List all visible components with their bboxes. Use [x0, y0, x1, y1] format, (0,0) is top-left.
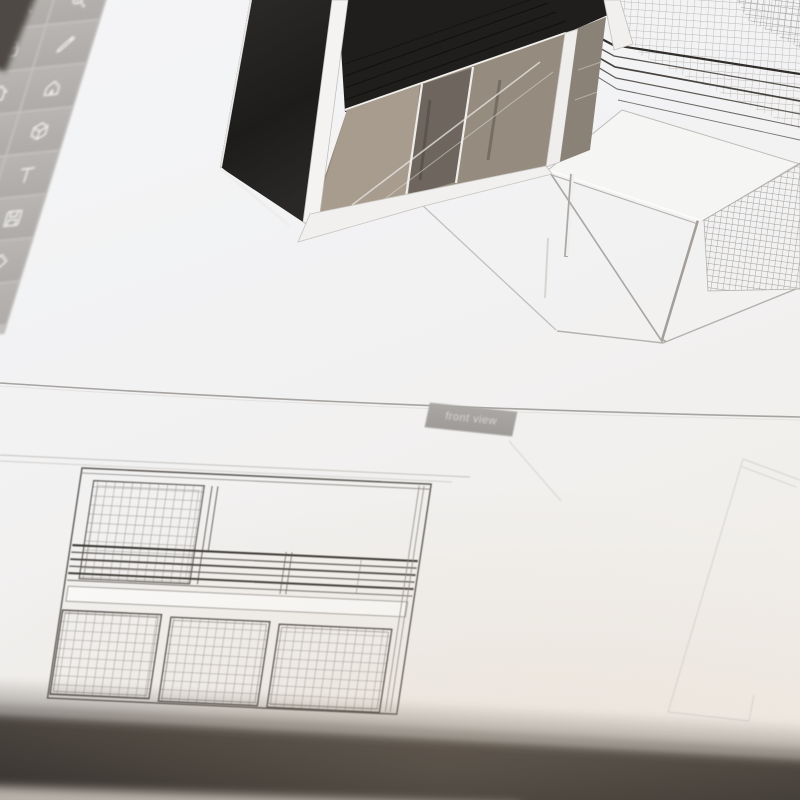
wrench-icon	[0, 293, 1, 318]
zoom-in-icon	[65, 0, 94, 13]
sheet-top-line	[0, 455, 470, 477]
cube-icon	[25, 119, 54, 144]
cad-canvas	[0, 0, 800, 800]
elevation-viewport[interactable]	[0, 441, 800, 721]
viewport-divider	[0, 383, 800, 420]
partial-elevation-drawing	[509, 441, 800, 721]
photographed-cad-screen: front view	[0, 0, 800, 800]
diamond-icon	[0, 250, 14, 275]
sheet-top-line-2	[0, 461, 452, 482]
house-icon	[38, 75, 67, 100]
text-icon	[12, 162, 41, 187]
front-elevation-drawing	[48, 468, 432, 714]
home-icon	[0, 81, 14, 106]
save-icon	[0, 206, 27, 231]
pen-icon	[52, 31, 81, 56]
perspective-viewport[interactable]	[220, 0, 800, 343]
